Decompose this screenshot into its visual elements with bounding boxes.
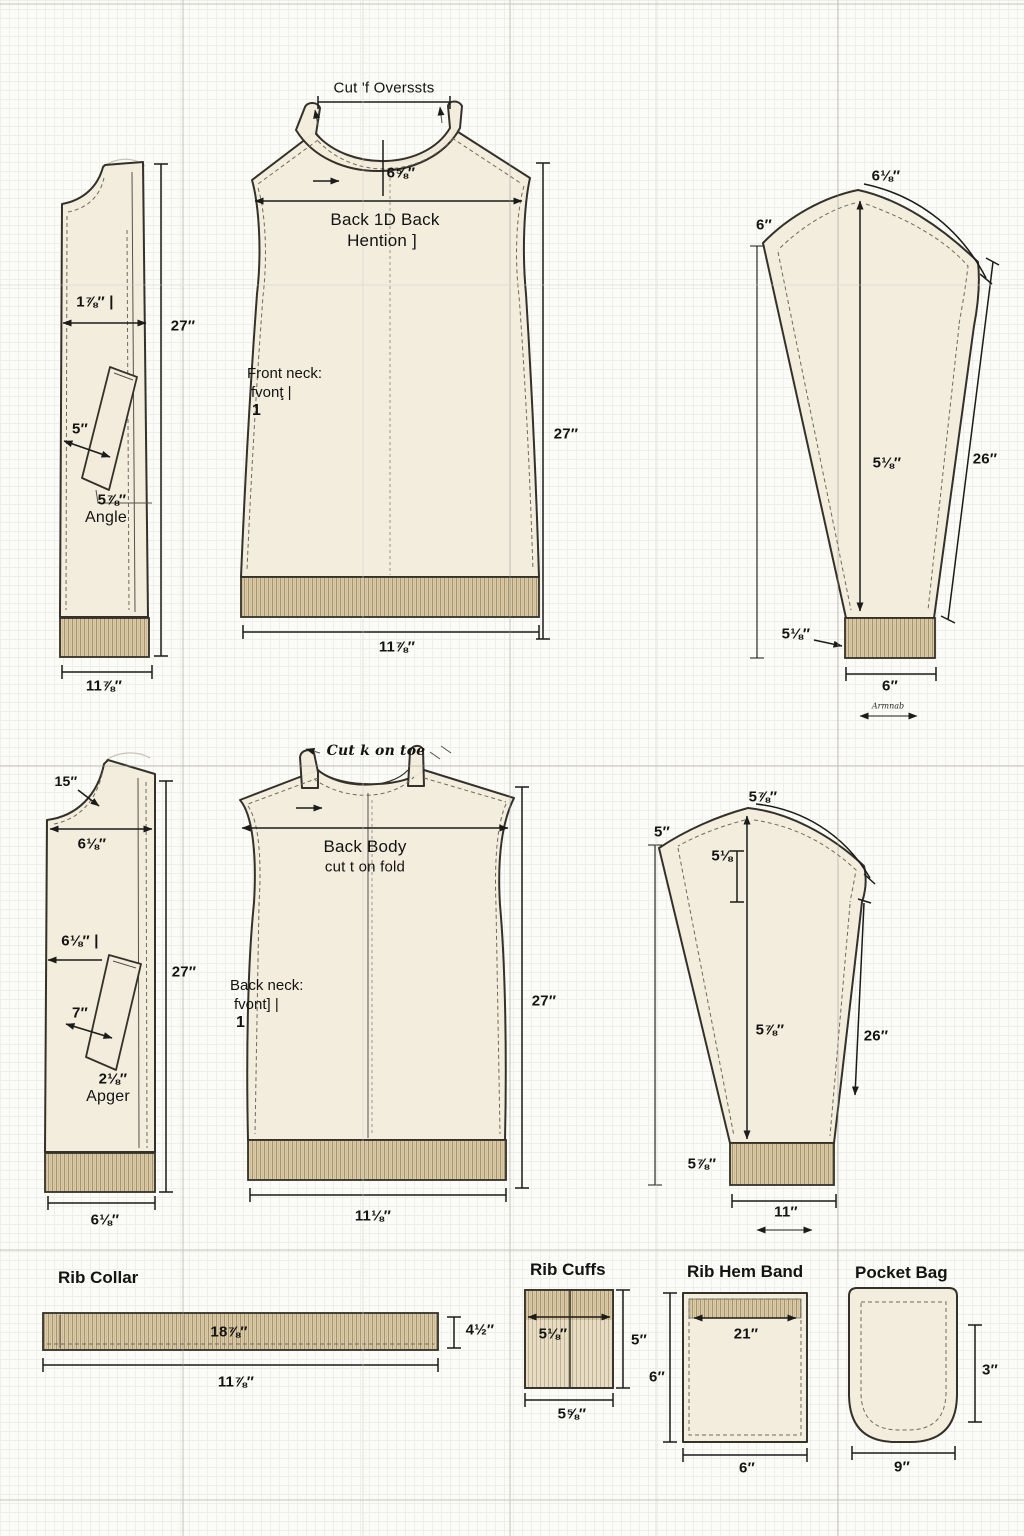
- dim-label-top-width: 6⅛″: [78, 836, 107, 853]
- dim-label-width: 5⅝″: [558, 1406, 587, 1423]
- back-body-rib-hem: [248, 1140, 506, 1180]
- dim-label-bottom: 11⅛″: [355, 1208, 391, 1225]
- dim-label-height: 6″: [649, 1369, 665, 1386]
- dim-label-angle: 2⅛″: [99, 1071, 128, 1088]
- dim-label-pocket: 7″: [72, 1005, 88, 1022]
- dim-label-height: 4½″: [466, 1322, 495, 1339]
- dim-label-inner: 21″: [734, 1326, 758, 1343]
- dim-label-width: 1⅞″ |: [76, 294, 113, 311]
- piece-mid-sleeve: [659, 808, 866, 1185]
- dim-label-height: 3″: [982, 1362, 998, 1379]
- front-body-rib-hem: [241, 577, 539, 617]
- sleeve-rib-cuff: [730, 1143, 834, 1185]
- neck-note-line3: 1: [236, 1014, 245, 1032]
- angle-word: Angle: [85, 509, 127, 527]
- piece-rib-hem-band: [683, 1293, 807, 1442]
- dim-label-width: 9″: [894, 1459, 910, 1476]
- sleeve-outline: [659, 808, 866, 1143]
- piece-top-sleeve: [763, 190, 979, 658]
- dim-label-top-left: 6″: [756, 217, 772, 234]
- section-title-rib-cuffs: Rib Cuffs: [530, 1260, 606, 1280]
- dim-label-height: 5″: [631, 1332, 647, 1349]
- dim-label-cap: 5⅞″: [749, 789, 778, 806]
- dim-label-side: 26″: [973, 451, 997, 468]
- neck-note-line2: fvont] |: [234, 996, 279, 1013]
- piece-name-line1: Back 1D Back: [330, 210, 439, 230]
- dim-label-neck: 6⅝″: [387, 165, 416, 182]
- dim-label-center: 5⅞″: [756, 1022, 785, 1039]
- dim-label-length: 27″: [554, 426, 578, 443]
- dim-label-cuff-width: 11″: [774, 1204, 798, 1221]
- neck-note-line1: Front neck:: [247, 365, 322, 382]
- section-title-rib-collar: Rib Collar: [58, 1268, 138, 1288]
- dim-label-cuff: 5⅞″: [688, 1156, 717, 1173]
- sleeve-outline: [763, 190, 979, 618]
- piece-name-line2: cut t on fold: [325, 859, 405, 876]
- pattern-sheet: 1⅞″ | 27″ 5″ 5⅞″ Angle 11⅞″ Cut 'f Overs…: [0, 0, 1024, 1536]
- dim-label-cuff-width: 6″: [882, 678, 898, 695]
- side-panel-rib-hem: [60, 618, 149, 657]
- sleeve-rib-cuff: [845, 618, 935, 658]
- cut-note: Cut k on toe: [327, 743, 426, 759]
- dim-label-cuff: 5⅛″: [782, 626, 811, 643]
- pocket-bag-outline: [849, 1288, 957, 1442]
- neck-note-line3: 1: [252, 402, 261, 420]
- dim-label-mid-width: 6⅛″ |: [61, 933, 98, 950]
- piece-pocket-bag: [849, 1288, 957, 1442]
- pattern-drawing: [0, 0, 1024, 1536]
- neck-note-line2: fvonţ |: [251, 384, 292, 401]
- section-title-pocket-bag: Pocket Bag: [855, 1263, 948, 1283]
- back-body-outline: [240, 770, 514, 1140]
- dim-label-bottom: 11⅞″: [86, 678, 122, 695]
- section-title-rib-hem-band: Rib Hem Band: [687, 1262, 803, 1282]
- back-body-collar-tab-left: [300, 750, 318, 788]
- piece-mid-side-panel: [45, 753, 155, 1192]
- dim-label-angle: 5⅞″: [98, 492, 127, 509]
- piece-name-line2: Hention ]: [347, 231, 417, 251]
- dim-label-cap: 6⅛″: [872, 168, 901, 185]
- dim-label-bottom: 11⅞″: [379, 639, 415, 656]
- dim-label-length: 27″: [171, 318, 195, 335]
- dim-label-neck: 15″: [55, 773, 78, 789]
- dim-label-width: 11⅞″: [218, 1374, 254, 1391]
- dim-label-length: 27″: [172, 964, 196, 981]
- dim-label-length: 27″: [532, 993, 556, 1010]
- piece-mid-back-body: [240, 746, 514, 1180]
- side-panel-rib-hem: [45, 1153, 155, 1192]
- neck-note-line1: Back neck:: [230, 977, 303, 994]
- dim-label-inner: 5⅛″: [539, 1326, 568, 1343]
- dim-label-side: 26″: [864, 1028, 888, 1045]
- piece-name-line1: Back Body: [323, 837, 406, 857]
- dim-label-top-left: 5″: [654, 824, 670, 841]
- cut-note: Cut 'f Overssts: [334, 80, 435, 97]
- angle-word: Apger: [86, 1088, 130, 1106]
- dim-label-inner: 18⅞″: [210, 1324, 247, 1341]
- dim-label-pocket: 5″: [72, 421, 88, 438]
- dim-label-cap-height: 5⅛: [711, 848, 732, 865]
- piece-top-side-panel: [60, 159, 152, 657]
- dim-label-center: 5⅛″: [873, 455, 902, 472]
- dim-label-bottom: 6⅛″: [91, 1212, 120, 1229]
- dim-label-width: 6″: [739, 1460, 755, 1477]
- grain-note: Armnab: [872, 702, 904, 711]
